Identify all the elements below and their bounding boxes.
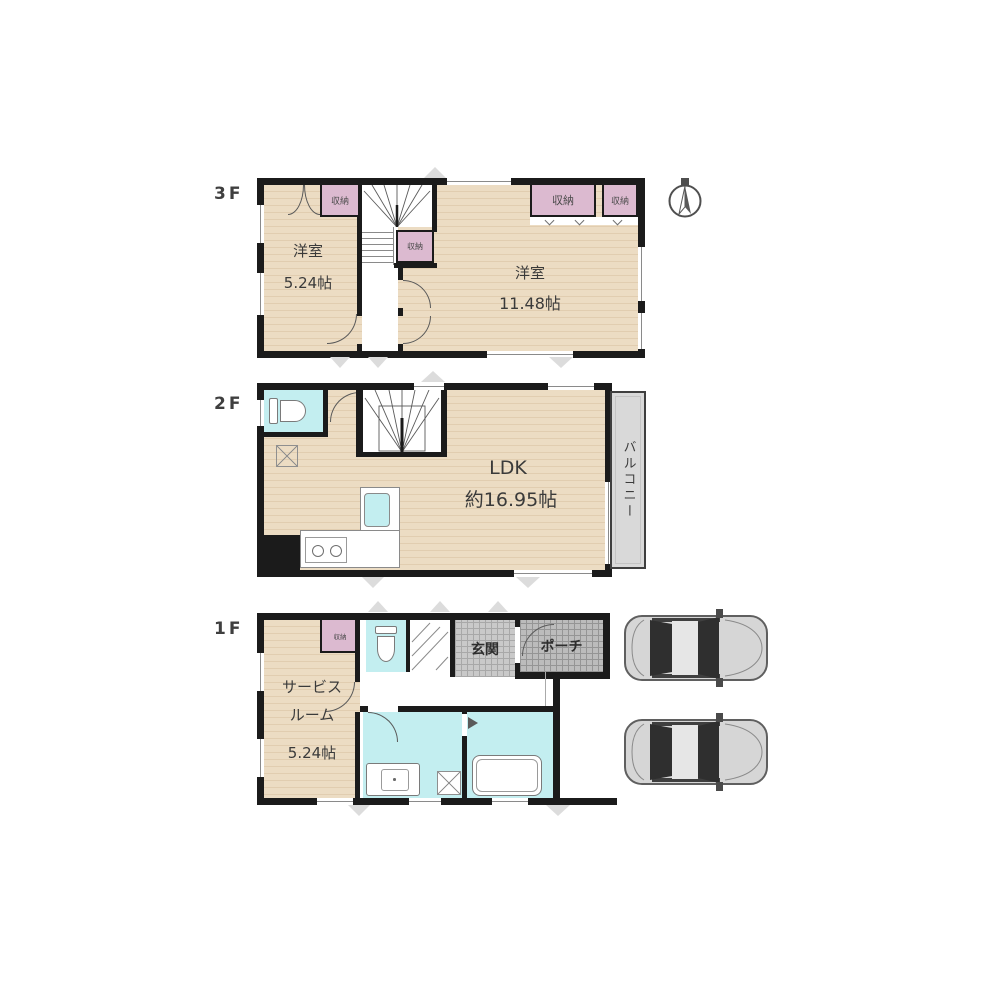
wall <box>356 452 447 457</box>
floor-2f: LDK 約16.95帖 <box>257 383 612 577</box>
wall <box>323 390 328 432</box>
window <box>257 205 264 243</box>
window <box>638 247 645 301</box>
wall <box>360 706 368 712</box>
wall <box>517 672 610 679</box>
floor-label-1f: 1F <box>214 619 243 639</box>
faucet-dot <box>393 778 396 781</box>
window <box>317 798 353 805</box>
vent-mark <box>546 805 570 816</box>
window <box>447 178 511 185</box>
closet-label: 収納 <box>552 192 574 208</box>
window <box>257 653 264 691</box>
washbasin-icon <box>366 763 420 796</box>
floor-1f: 収納 玄関 ポーチ <box>257 613 617 805</box>
north-compass-icon <box>664 174 706 220</box>
vent-mark <box>368 357 388 368</box>
vent-mark <box>488 601 508 612</box>
wall <box>398 308 403 316</box>
wall <box>355 620 360 682</box>
wall <box>432 185 437 232</box>
bathtub-icon <box>472 755 542 796</box>
burner-icon <box>330 545 342 557</box>
entrance-step-line <box>545 672 546 706</box>
service-room-size: 5.24帖 <box>264 745 360 762</box>
toilet-bowl-icon <box>377 636 395 662</box>
stair-fan-icon <box>362 185 432 227</box>
entrance-label: 玄関 <box>471 639 499 659</box>
balcony-label: バルコニー <box>619 440 638 520</box>
vent-mark <box>430 601 450 612</box>
toilet-tank-icon <box>269 398 278 424</box>
wall <box>515 663 520 679</box>
wall <box>398 268 403 280</box>
stair-treads <box>362 227 394 265</box>
toilet-tank-icon <box>375 626 397 634</box>
ldk-size: 約16.95帖 <box>414 490 608 511</box>
door-arc <box>403 316 431 344</box>
window <box>514 570 592 577</box>
window <box>257 739 264 777</box>
window <box>638 313 645 349</box>
vent-mark <box>424 167 446 178</box>
bath-door-mark <box>468 717 478 729</box>
vent-mark <box>348 805 370 816</box>
service-room-name-1: サービス <box>264 679 360 696</box>
vent-mark <box>516 577 540 588</box>
vent-mark <box>549 357 573 368</box>
door-arc <box>327 314 357 344</box>
window <box>492 798 528 805</box>
closet-label: 収納 <box>611 194 629 207</box>
wall <box>357 344 362 351</box>
closet-3f-small-room: 収納 <box>320 185 360 217</box>
wall <box>264 432 328 437</box>
closet-label: 収納 <box>407 241 423 252</box>
room-small-size: 5.24帖 <box>264 275 352 292</box>
entrance-hall: 玄関 <box>455 620 515 677</box>
wall <box>398 706 560 712</box>
stair-fan-icon <box>363 390 441 452</box>
window <box>257 273 264 315</box>
window <box>487 351 573 358</box>
vent-mark <box>421 371 445 382</box>
ldk-name: LDK <box>448 458 568 479</box>
washing-machine-icon <box>437 771 461 795</box>
closet-1f: 収納 <box>320 620 360 653</box>
vent-mark <box>368 601 388 612</box>
window <box>409 798 441 805</box>
wall <box>398 344 403 351</box>
closet-3f-large-room-2: 収納 <box>602 185 638 217</box>
window <box>257 400 264 426</box>
vent-mark <box>362 577 384 588</box>
staircase-1f <box>410 620 450 672</box>
wall <box>356 390 363 452</box>
pipe-space <box>264 535 300 570</box>
kitchen-sink-icon <box>364 493 390 527</box>
closet-3f-center: 収納 <box>396 230 434 263</box>
stove-icon <box>305 537 347 563</box>
room-large-size: 11.48帖 <box>476 295 584 313</box>
car-top-view-icon <box>622 608 770 688</box>
window <box>548 383 594 390</box>
room-large-name: 洋室 <box>490 265 570 282</box>
service-room-name-2: ルーム <box>264 707 360 724</box>
wall <box>441 390 447 452</box>
closet-label: 収納 <box>331 194 349 207</box>
closet-3f-large-room-1: 収納 <box>530 185 596 217</box>
bath-door-gap <box>462 714 467 736</box>
wall <box>553 679 560 805</box>
vent-mark <box>330 357 350 368</box>
floor-label-2f: 2F <box>214 394 243 414</box>
floor-label-3f: 3F <box>214 184 243 204</box>
staircase-2f <box>363 390 441 452</box>
balcony: バルコニー <box>610 391 646 569</box>
refrigerator-space-icon <box>276 445 298 467</box>
toilet-bowl-icon <box>280 400 306 422</box>
wall <box>603 613 610 679</box>
wall <box>515 613 520 627</box>
burner-icon <box>312 545 324 557</box>
floor-plan-canvas: 3F 2F 1F 収納 <box>0 0 1000 990</box>
floor-3f: 収納 収納 収納 収納 洋室 5.24帖 洋室 11.48帖 <box>257 178 645 358</box>
room-small-name: 洋室 <box>270 243 346 260</box>
closet-label: 収納 <box>334 631 347 641</box>
car-top-view-icon <box>622 712 770 792</box>
wall <box>257 613 610 620</box>
window <box>414 383 444 390</box>
door-arc <box>403 280 431 308</box>
stair-winder <box>362 185 432 227</box>
door-arc <box>288 185 304 215</box>
bathtub-inner <box>476 759 538 792</box>
door-arc <box>304 185 320 215</box>
stair-diagonal-icon <box>410 620 450 672</box>
